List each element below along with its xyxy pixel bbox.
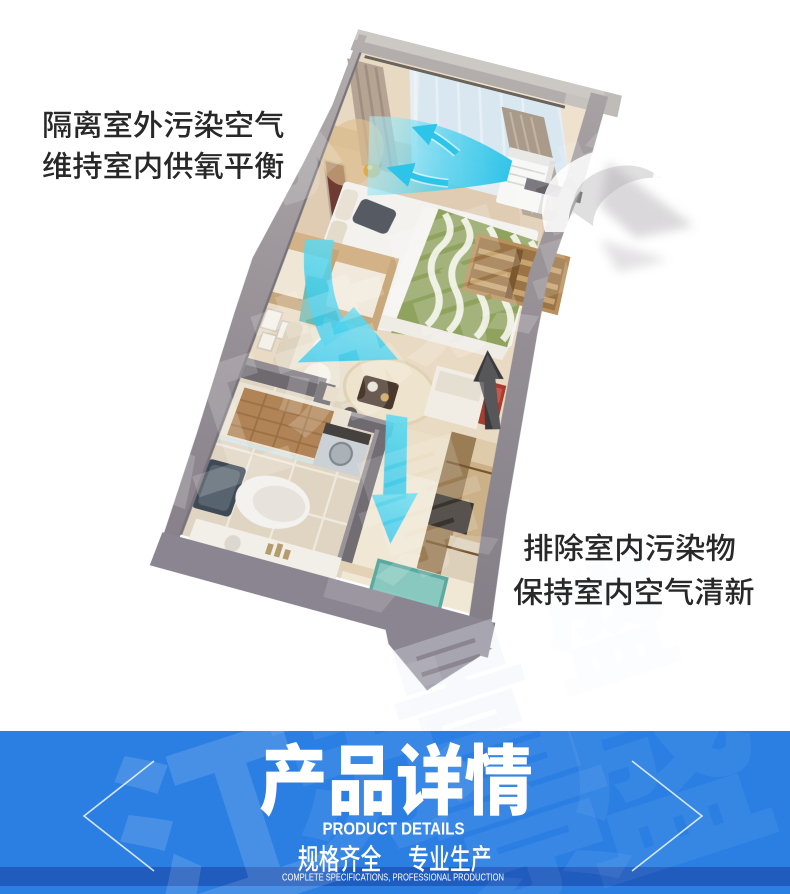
svg-text:COMPLETE SPECIFICATIONS, PROFE: COMPLETE SPECIFICATIONS, PROFESSIONAL PR… <box>282 872 504 884</box>
svg-text:PRODUCT DETAILS: PRODUCT DETAILS <box>323 819 465 839</box>
